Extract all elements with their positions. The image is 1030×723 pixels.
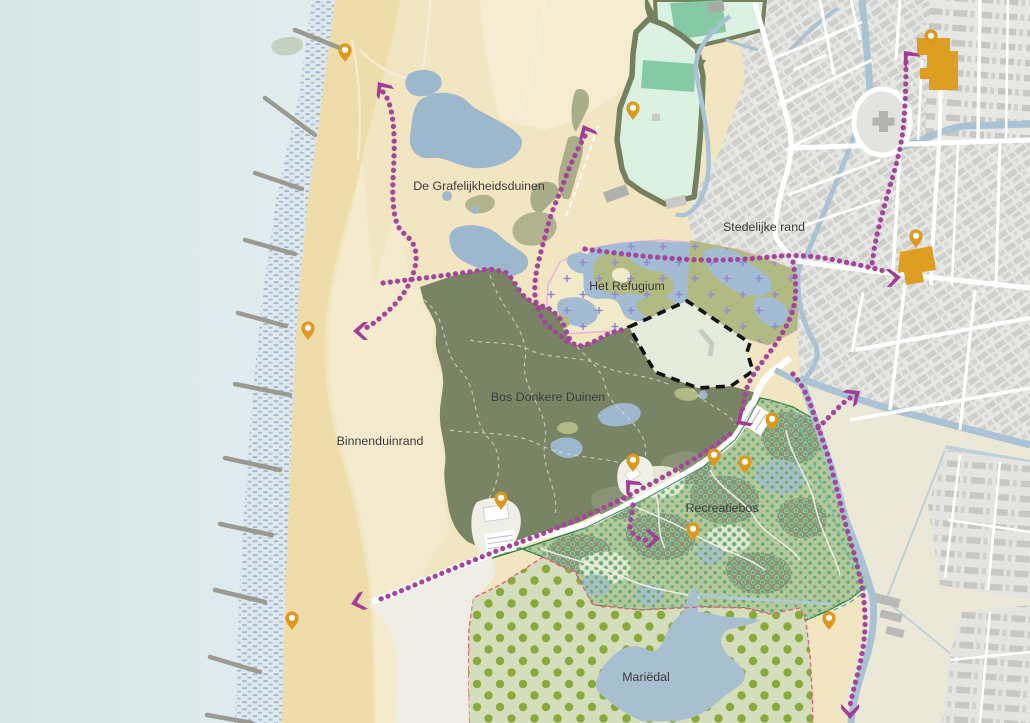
svg-text:Recreatiebos: Recreatiebos	[685, 501, 758, 515]
svg-text:Bos Donkere Duinen: Bos Donkere Duinen	[491, 390, 605, 404]
svg-text:Mariëdal: Mariëdal	[622, 670, 670, 684]
svg-text:Binnenduinrand: Binnenduinrand	[337, 434, 424, 448]
svg-text:Het Refugium: Het Refugium	[589, 279, 665, 293]
svg-text:Stedelijke rand: Stedelijke rand	[723, 220, 805, 234]
svg-text:De Grafelijkheidsduinen: De Grafelijkheidsduinen	[413, 179, 545, 193]
